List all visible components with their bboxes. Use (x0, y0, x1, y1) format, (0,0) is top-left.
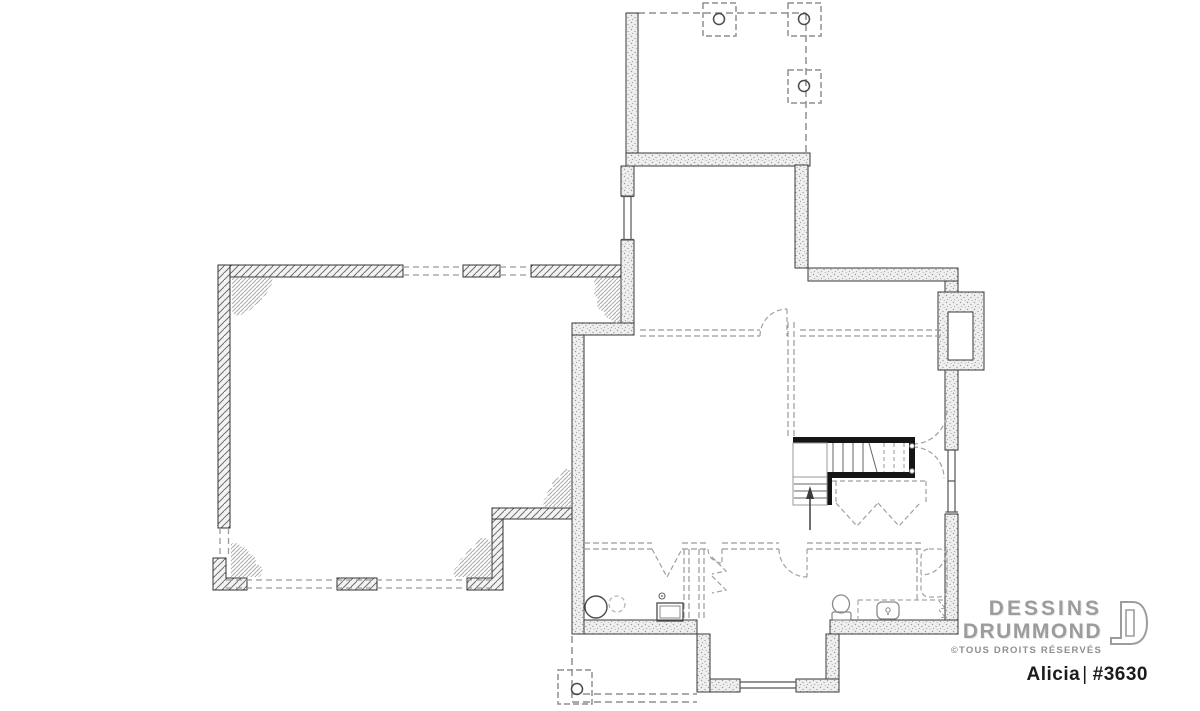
vanity-counter (858, 600, 943, 620)
door-swing (921, 549, 947, 575)
wall (621, 240, 634, 335)
chimney (938, 292, 984, 370)
door-swing (913, 447, 944, 478)
plan-separator: | (1082, 664, 1087, 685)
understair-dashed (832, 481, 926, 503)
porch-outline-dashed (638, 13, 806, 153)
stair-direction-arrow (806, 486, 814, 530)
upper-floor-dashed-walls (584, 322, 943, 620)
pier-pad (788, 3, 821, 36)
plan-name: Alicia (1027, 664, 1081, 685)
staircase (793, 437, 915, 530)
plan-title: Alicia|#3630 (951, 664, 1148, 686)
sink-drain (886, 608, 890, 612)
newel-post (910, 444, 915, 449)
pier-post (799, 81, 810, 92)
copyright-text: ©TOUS DROITS RÉSERVÉS (951, 645, 1102, 656)
wall (808, 268, 958, 281)
upper-porch (638, 3, 821, 153)
corner-pad (232, 278, 273, 316)
foundation-walls (572, 13, 958, 692)
window (946, 450, 959, 512)
wall (572, 323, 584, 634)
garage-wall (218, 265, 230, 528)
pier-post (799, 14, 810, 25)
floor-drain-dot (661, 595, 663, 597)
porch-outline-dashed (572, 636, 697, 702)
sink (877, 602, 899, 619)
wall (626, 153, 810, 166)
newel-post (910, 469, 915, 474)
pier-pad (788, 70, 821, 103)
sink-dot (887, 613, 889, 615)
door-swing (913, 410, 947, 444)
mechanical-fixtures (585, 593, 683, 621)
pier-post (714, 14, 725, 25)
door-swing (779, 549, 807, 577)
door-swing (708, 549, 722, 563)
bathtub (921, 549, 947, 597)
brand-name-line1: DESSINS (951, 597, 1102, 620)
wall (796, 679, 839, 692)
pier-pad (558, 670, 592, 704)
garage-wall (531, 265, 621, 277)
window (740, 680, 796, 693)
brand-name-line2: DRUMMOND (951, 620, 1102, 643)
lower-porch (558, 636, 697, 704)
pier-post (572, 684, 583, 695)
wall (795, 165, 808, 268)
garage-walls (213, 265, 621, 590)
wall (584, 620, 697, 634)
corner-pad (594, 278, 620, 323)
future-drain (609, 596, 625, 612)
corner-pad (454, 538, 491, 577)
corner-pad (543, 469, 571, 507)
floor-plan-canvas: DESSINS DRUMMOND ©TOUS DROITS RÉSERVÉS A… (0, 0, 1200, 711)
wall (830, 620, 958, 634)
title-block: DESSINS DRUMMOND ©TOUS DROITS RÉSERVÉS A… (951, 597, 1148, 686)
drummond-logo-icon (1108, 598, 1148, 652)
toilet-bowl (833, 595, 850, 613)
wall (626, 13, 638, 153)
plumbing-marks (939, 601, 945, 618)
garage-wall (218, 265, 403, 277)
equipment-box-inner (660, 606, 680, 618)
sump-basin (585, 596, 607, 618)
pier-pad (703, 3, 736, 36)
bathroom-fixtures (832, 549, 947, 620)
door-swings (652, 309, 947, 593)
wall (697, 634, 710, 692)
plan-number: #3630 (1093, 664, 1148, 685)
garage-wall (463, 265, 500, 277)
double-door (652, 549, 682, 577)
corner-pads (231, 278, 620, 577)
window (621, 196, 634, 240)
understair-doors (836, 503, 920, 526)
garage-link-wall (492, 508, 572, 519)
wall (572, 323, 634, 335)
door-swing (760, 309, 787, 336)
corner-pad (231, 543, 262, 577)
wall (621, 166, 634, 196)
